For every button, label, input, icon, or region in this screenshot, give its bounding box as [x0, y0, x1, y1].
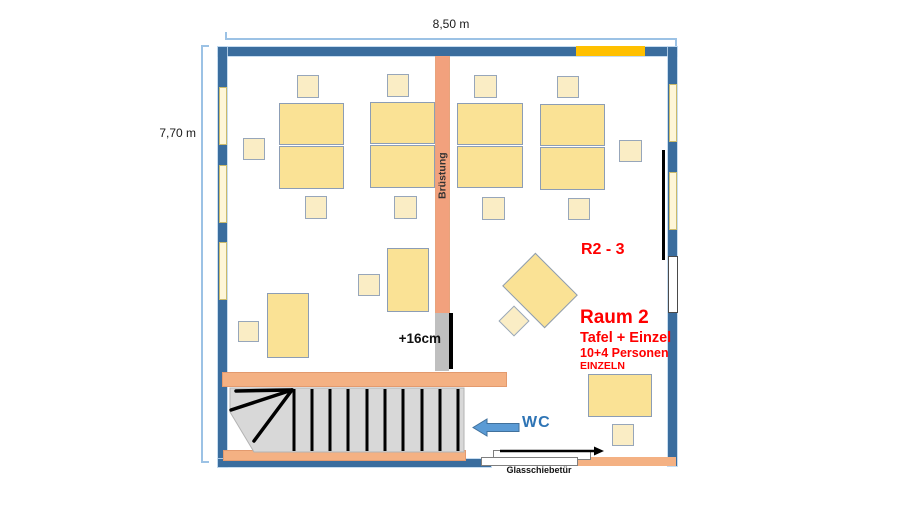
dimension-tick [201, 45, 209, 47]
chair [297, 75, 319, 98]
chair [238, 321, 259, 342]
dimension-line-top [225, 38, 677, 40]
chair [387, 74, 409, 97]
window-segment [669, 172, 677, 230]
chair [474, 75, 497, 98]
wc-label: WC [522, 414, 551, 432]
step-edge-line [449, 313, 453, 369]
dimension-line-left [201, 45, 203, 463]
table [387, 248, 429, 312]
dimension-tick [201, 461, 209, 463]
chair [482, 197, 505, 220]
linework-layer [0, 0, 900, 506]
table [457, 146, 523, 188]
chair [358, 274, 380, 296]
chair [619, 140, 642, 162]
stairs-top-landing [222, 372, 507, 387]
table [370, 145, 435, 188]
wall-board-line [662, 150, 665, 260]
left-dimension-label: 7,70 m [148, 126, 196, 140]
room-name-label: Raum 2 [580, 307, 649, 329]
table [540, 104, 605, 146]
top-dimension-label: 8,50 m [225, 17, 677, 31]
wc-arrow-icon [473, 419, 519, 436]
chair [568, 198, 590, 220]
table [279, 103, 344, 145]
room-desc-line2: 10+4 Personen [580, 346, 669, 360]
diamond-chair [498, 305, 529, 336]
room-code-label: R2 - 3 [581, 241, 625, 259]
window-segment [219, 242, 227, 300]
stairs-winder-body [230, 388, 464, 452]
glass-door-label: Glasschiebetür [489, 465, 589, 475]
floor-plan: 8,50 m 7,70 m Brüstung +16cm R2 - 3 Raum… [0, 0, 900, 506]
chair [394, 196, 417, 219]
right-wall-door [668, 256, 678, 313]
room-desc-line3: EINZELN [580, 360, 625, 372]
bottom-wall-segment [578, 457, 676, 466]
chair [557, 76, 579, 98]
stairs-bottom-rail [223, 450, 466, 461]
stair-treads [294, 389, 458, 451]
table [279, 146, 344, 189]
table [370, 102, 435, 144]
chair [612, 424, 634, 446]
table [267, 293, 309, 358]
room-desc-line1: Tafel + Einzel [580, 330, 671, 346]
window-segment [219, 87, 227, 145]
wall-highlight-segment [576, 46, 645, 56]
chair [243, 138, 265, 160]
stair-winder-lines [231, 390, 292, 441]
window-segment [669, 84, 677, 142]
dimension-tick [225, 32, 227, 40]
table [588, 374, 652, 417]
table [457, 103, 523, 145]
step-height-label: +16cm [383, 331, 441, 346]
bruestung-label: Brüstung [434, 146, 451, 206]
window-segment [219, 165, 227, 223]
chair [305, 196, 327, 219]
table [540, 147, 605, 190]
